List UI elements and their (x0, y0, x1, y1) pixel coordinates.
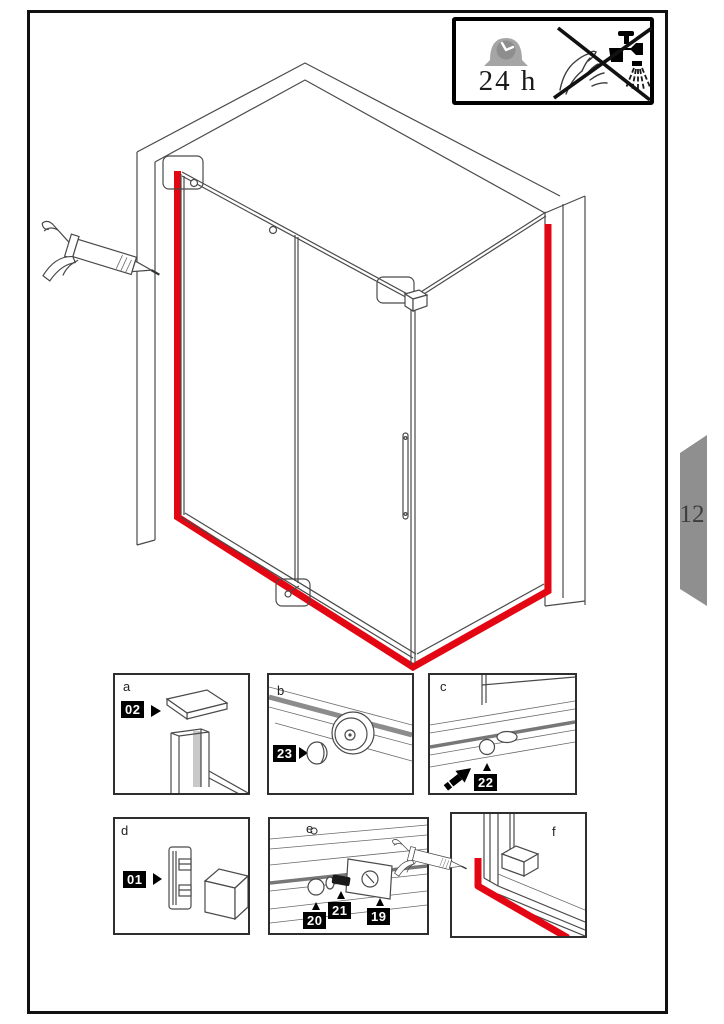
panel-label: d (121, 823, 128, 838)
shower-enclosure-sealing-diagram (35, 45, 650, 695)
panel-label: a (123, 679, 130, 694)
press-arrow-icon (441, 762, 475, 793)
part-number-23: 23 (273, 745, 296, 762)
caulk-gun-icon (392, 824, 488, 896)
arrow-up-icon (483, 763, 491, 771)
arrow-up-icon (376, 898, 384, 906)
part-number-22: 22 (474, 774, 497, 791)
cure-time-warning-box: 24 h (452, 17, 654, 105)
part-number-01: 01 (123, 871, 146, 888)
glass-panel-lines (181, 172, 546, 665)
panel-label: b (277, 683, 284, 698)
arrow-right-icon (151, 705, 161, 717)
no-handwash-no-shower-icon (552, 24, 654, 104)
part-number-19: 19 (367, 908, 390, 925)
page-number: 12 (672, 501, 712, 529)
door-handle (403, 433, 408, 519)
panel-label: f (552, 824, 556, 839)
panel-label: e (306, 821, 313, 836)
caulk-gun-icon (35, 220, 165, 311)
detail-panel-d: d 01 (113, 817, 250, 935)
arrow-right-icon (153, 873, 162, 885)
cure-duration-label: 24 h (460, 65, 556, 98)
sealant-bead-main (178, 171, 549, 667)
part-number-02: 02 (121, 701, 144, 718)
panel-label: c (440, 679, 447, 694)
arrow-up-icon (337, 891, 345, 899)
part-number-20: 20 (303, 912, 326, 929)
part-number-21: 21 (328, 902, 351, 919)
